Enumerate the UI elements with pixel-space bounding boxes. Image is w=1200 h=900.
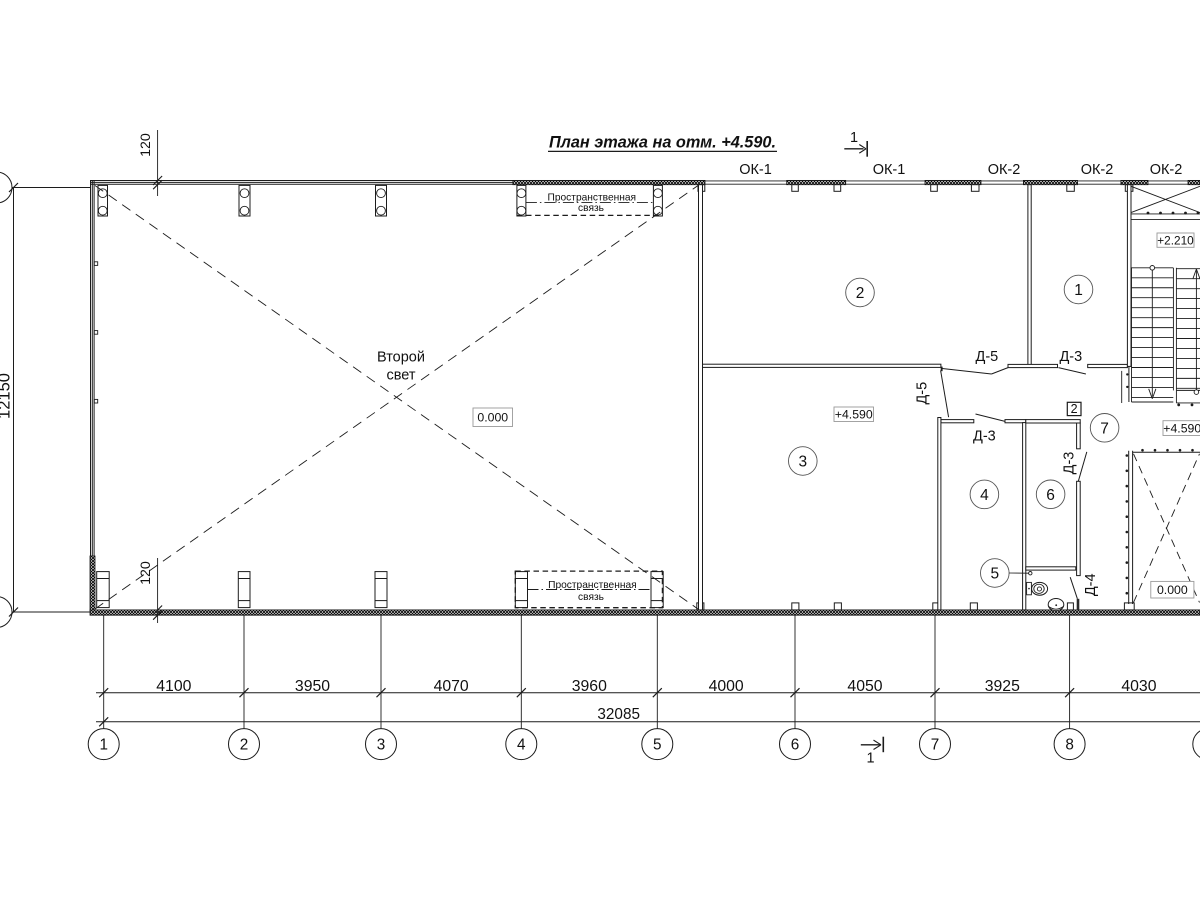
- svg-text:0.000: 0.000: [477, 411, 508, 425]
- svg-text:1: 1: [1074, 282, 1083, 299]
- svg-text:Д-5: Д-5: [915, 382, 931, 405]
- svg-text:Второй: Второй: [377, 350, 425, 366]
- svg-text:+4.590: +4.590: [1163, 421, 1200, 435]
- svg-text:4: 4: [980, 487, 989, 504]
- svg-text:5: 5: [990, 566, 999, 583]
- svg-text:5: 5: [653, 737, 662, 754]
- svg-text:4030: 4030: [1121, 678, 1156, 695]
- svg-text:3960: 3960: [572, 678, 607, 695]
- svg-text:120: 120: [138, 133, 154, 157]
- svg-text:связь: связь: [578, 203, 604, 214]
- svg-text:1: 1: [99, 737, 108, 754]
- svg-text:3925: 3925: [985, 678, 1020, 695]
- svg-text:Пространственная: Пространственная: [548, 192, 637, 203]
- svg-text:+2.210: +2.210: [1157, 233, 1194, 247]
- svg-text:Д-3: Д-3: [973, 428, 996, 444]
- svg-text:1: 1: [866, 751, 874, 767]
- svg-text:4070: 4070: [434, 678, 469, 695]
- svg-text:План этажа на отм. +4.590.: План этажа на отм. +4.590.: [549, 134, 776, 152]
- svg-text:ОК-1: ОК-1: [873, 162, 906, 178]
- svg-text:2: 2: [1071, 402, 1078, 416]
- svg-text:ОК-2: ОК-2: [988, 162, 1021, 178]
- svg-text:Д-3: Д-3: [1062, 452, 1078, 475]
- svg-text:связь: связь: [578, 592, 604, 603]
- svg-text:120: 120: [138, 561, 154, 585]
- svg-text:4: 4: [517, 737, 526, 754]
- svg-text:32085: 32085: [597, 706, 640, 723]
- svg-text:1: 1: [850, 130, 858, 146]
- svg-text:+4.590: +4.590: [835, 408, 873, 422]
- svg-text:ОК-2: ОК-2: [1081, 162, 1114, 178]
- svg-text:ОК-2: ОК-2: [1150, 162, 1183, 178]
- svg-text:0.000: 0.000: [1157, 583, 1188, 597]
- svg-text:ОК-1: ОК-1: [739, 162, 772, 178]
- svg-text:7: 7: [1100, 420, 1109, 437]
- svg-text:2: 2: [240, 737, 249, 754]
- svg-text:7: 7: [931, 737, 940, 754]
- svg-text:12150: 12150: [0, 373, 14, 419]
- svg-text:Д-5: Д-5: [976, 349, 999, 365]
- svg-text:Д-3: Д-3: [1059, 349, 1082, 365]
- svg-text:6: 6: [1046, 487, 1055, 504]
- svg-text:3: 3: [377, 737, 386, 754]
- svg-text:4100: 4100: [156, 678, 191, 695]
- svg-text:4050: 4050: [847, 678, 882, 695]
- svg-text:3950: 3950: [295, 678, 330, 695]
- svg-text:2: 2: [856, 285, 865, 302]
- svg-text:6: 6: [791, 737, 800, 754]
- svg-text:Пространственная: Пространственная: [548, 580, 637, 591]
- svg-text:свет: свет: [386, 368, 415, 384]
- svg-text:Д-4: Д-4: [1083, 573, 1099, 596]
- svg-text:3: 3: [798, 454, 807, 471]
- svg-text:4000: 4000: [709, 678, 744, 695]
- svg-text:8: 8: [1065, 737, 1074, 754]
